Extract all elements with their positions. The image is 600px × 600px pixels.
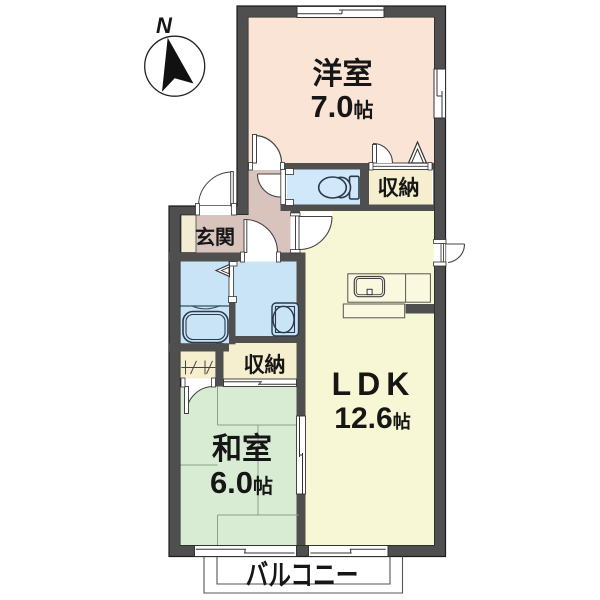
svg-text:バルコニー: バルコニー [246,560,359,592]
svg-text:和室: 和室 [212,432,272,466]
svg-text:洋室: 洋室 [313,57,373,91]
svg-text:N: N [156,13,173,38]
svg-text:玄関: 玄関 [195,225,235,249]
svg-text:収納: 収納 [378,176,420,200]
svg-text:収納: 収納 [244,353,286,377]
svg-text:LDK: LDK [332,366,416,402]
